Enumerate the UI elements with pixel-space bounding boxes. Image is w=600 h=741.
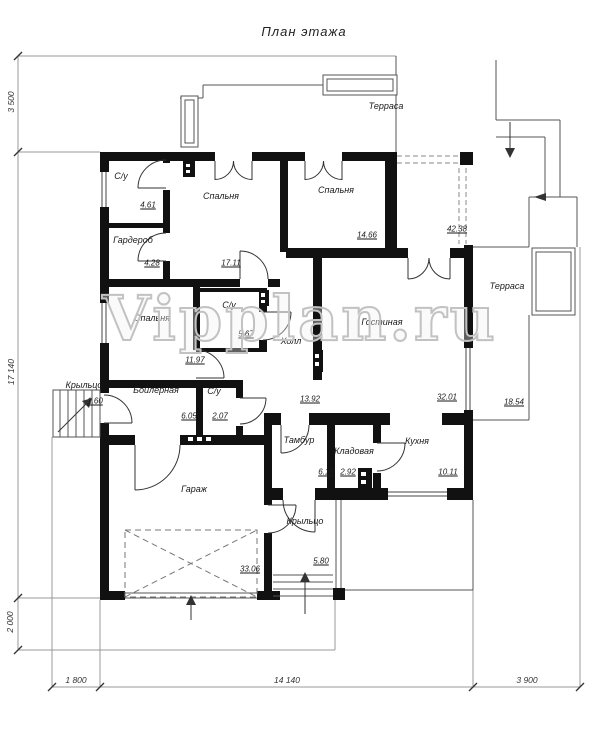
room-area-bedroom-3: 11.97 bbox=[185, 356, 204, 365]
room-area-hall: 13.92 bbox=[300, 395, 320, 404]
room-area-kitchen: 10.11 bbox=[438, 468, 457, 477]
room-area-garage: 33.06 bbox=[240, 565, 260, 574]
room-area-pantry: 2.92 bbox=[340, 468, 356, 477]
dim-left-top: 3 500 bbox=[6, 72, 16, 132]
room-label-bedroom-1: Спальня bbox=[203, 191, 239, 201]
room-label-boiler: Бойлерная bbox=[133, 385, 179, 395]
walls bbox=[100, 152, 473, 600]
room-area-tambour: 6.18 bbox=[318, 468, 334, 477]
terrace-top-outline bbox=[180, 56, 397, 152]
room-label-kitchen: Кухня bbox=[405, 436, 429, 446]
parking-space bbox=[125, 530, 257, 597]
dim-bottom-left: 1 800 bbox=[46, 675, 106, 685]
floor-plan-page: План этажа bbox=[0, 0, 600, 741]
room-label-terrace-top: Терраса bbox=[369, 101, 404, 111]
room-area-bedroom-1: 17.11 bbox=[221, 259, 240, 268]
room-area-porch-left: 1.60 bbox=[87, 397, 103, 406]
dimension-ticks bbox=[14, 52, 584, 691]
room-area-porch-bottom: 5.80 bbox=[313, 557, 329, 566]
room-area-bedroom-2: 14.66 bbox=[357, 231, 377, 240]
floor-plan-drawing bbox=[0, 0, 600, 741]
direction-arrows-top bbox=[505, 148, 546, 201]
room-label-su-top: С/у bbox=[114, 171, 128, 181]
room-area-living: 32.01 bbox=[437, 393, 457, 402]
room-area-su-top: 4.61 bbox=[140, 201, 156, 210]
room-label-garage: Гараж bbox=[181, 484, 207, 494]
room-area-wardrobe: 4.28 bbox=[144, 259, 160, 268]
room-label-porch-bottom: Крыльцо bbox=[287, 516, 324, 526]
room-label-tambour: Тамбур bbox=[284, 435, 315, 445]
room-area-boiler: 6.05 bbox=[181, 412, 197, 421]
dim-left-mid: 17 140 bbox=[6, 342, 16, 402]
room-label-porch-left: Крыльцо bbox=[66, 380, 103, 390]
dim-bottom-right: 3 900 bbox=[497, 675, 557, 685]
room-area-terrace-right: 18.54 bbox=[504, 398, 524, 407]
room-area-terrace-top: 42.38 bbox=[447, 225, 467, 234]
room-label-pantry: Кладовая bbox=[334, 446, 374, 456]
room-area-su-bottom: 2.07 bbox=[212, 412, 228, 421]
dim-left-bottom: 2 000 bbox=[5, 592, 15, 652]
page-title: План этажа bbox=[261, 24, 346, 39]
dim-bottom-mid: 14 140 bbox=[257, 675, 317, 685]
porch-bottom-arrow bbox=[300, 572, 310, 582]
watermark: Vipplan.ru bbox=[102, 282, 497, 355]
room-label-su-bottom: С/у bbox=[207, 386, 221, 396]
room-label-bedroom-2: Спальня bbox=[318, 185, 354, 195]
room-label-wardrobe: Гардероб bbox=[113, 235, 153, 245]
